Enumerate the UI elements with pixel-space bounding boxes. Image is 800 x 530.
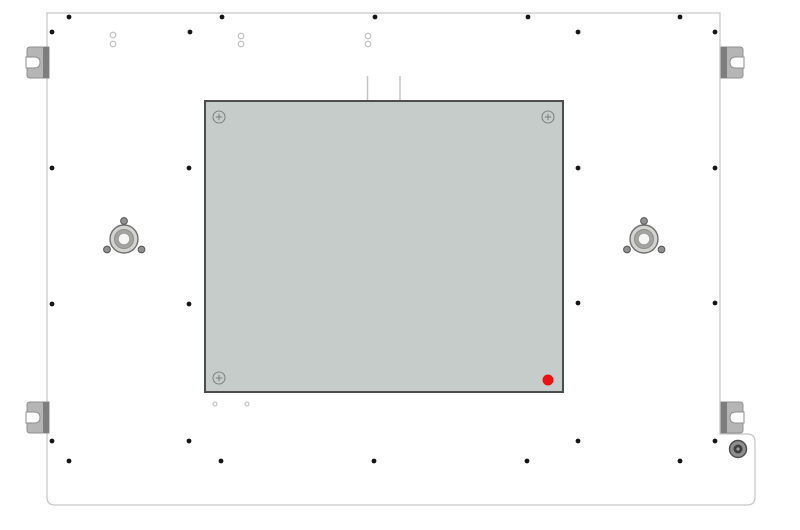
- bushing-bore: [638, 233, 650, 245]
- drill-hole-dot: [372, 459, 377, 464]
- bracket-edge-strip: [721, 402, 727, 433]
- drill-hole-dot: [188, 30, 193, 35]
- drill-hole-dot: [67, 15, 72, 20]
- pilot-hole-circle: [245, 402, 249, 406]
- drill-hole-dot: [187, 166, 192, 171]
- drill-hole-dot: [713, 30, 718, 35]
- pilot-hole-circle: [365, 41, 371, 47]
- technical-drawing-canvas: [0, 0, 800, 530]
- satellite-hole: [138, 246, 145, 253]
- mounting-bracket-left-bottom: [26, 402, 49, 433]
- red-indicator-dot: [543, 375, 554, 386]
- bracket-notch: [26, 57, 40, 68]
- drill-hole-dot: [187, 439, 192, 444]
- grommet: [730, 441, 747, 458]
- drill-hole-dot: [187, 302, 192, 307]
- drill-hole-dot: [576, 301, 581, 306]
- drill-hole-dot: [373, 15, 378, 20]
- drill-hole-dot: [525, 459, 530, 464]
- drill-hole-dot: [50, 439, 55, 444]
- drill-hole-dot: [576, 439, 581, 444]
- drill-hole-dot: [50, 166, 55, 171]
- mounting-bracket-right-top: [721, 47, 744, 78]
- drill-hole-dot: [713, 301, 718, 306]
- bracket-notch: [730, 412, 744, 423]
- satellite-hole: [121, 218, 128, 225]
- drill-hole-dot: [219, 459, 224, 464]
- bracket-edge-strip: [43, 47, 49, 78]
- bracket-edge-strip: [721, 47, 727, 78]
- satellite-hole: [104, 246, 111, 253]
- pilot-hole-circle: [110, 32, 116, 38]
- drill-hole-dot: [678, 459, 683, 464]
- drill-hole-dot: [50, 302, 55, 307]
- drill-hole-dot: [713, 439, 718, 444]
- drill-hole-dot: [713, 166, 718, 171]
- bushing-bore: [118, 233, 130, 245]
- satellite-hole: [624, 246, 631, 253]
- bracket-edge-strip: [43, 402, 49, 433]
- panel-drawing: [0, 0, 800, 530]
- sub-plate: [205, 101, 563, 392]
- mounting-bracket-left-top: [26, 47, 49, 78]
- satellite-hole: [641, 218, 648, 225]
- pilot-hole-circle: [213, 402, 217, 406]
- mounting-bracket-right-bottom: [721, 402, 744, 433]
- drill-hole-dot: [678, 15, 683, 20]
- drill-hole-dot: [220, 15, 225, 20]
- drill-hole-dot: [576, 166, 581, 171]
- grommet-center: [736, 447, 739, 450]
- drill-hole-dot: [526, 15, 531, 20]
- drill-hole-dot: [576, 30, 581, 35]
- drill-hole-dot: [50, 30, 55, 35]
- drill-hole-dot: [67, 459, 72, 464]
- bracket-notch: [26, 412, 40, 423]
- pilot-hole-circle: [238, 41, 244, 47]
- pilot-hole-circle: [110, 41, 116, 47]
- bracket-notch: [730, 57, 744, 68]
- satellite-hole: [658, 246, 665, 253]
- pilot-hole-circle: [238, 33, 244, 39]
- pilot-hole-circle: [365, 33, 371, 39]
